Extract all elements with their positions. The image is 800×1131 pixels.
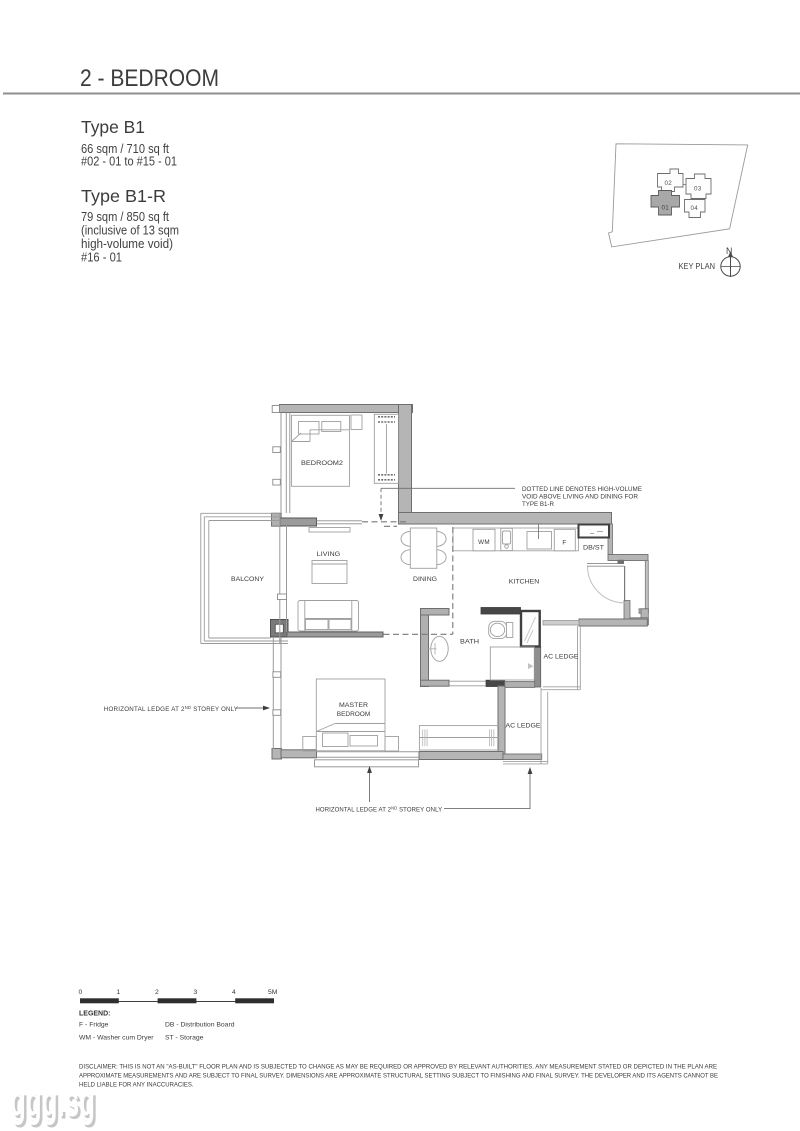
svg-text:BEDROOM2: BEDROOM2 <box>301 460 343 467</box>
svg-text:DISCLAIMER: THIS IS NOT AN "AS: DISCLAIMER: THIS IS NOT AN "AS-BUILT" FL… <box>79 1065 717 1071</box>
svg-text:Type B1-R: Type B1-R <box>81 186 166 206</box>
svg-text:WM - Washer cum Dryer: WM - Washer cum Dryer <box>79 1035 154 1042</box>
svg-text:2: 2 <box>155 989 159 996</box>
svg-text:APPROXIMATE MEASUREMENTS AND A: APPROXIMATE MEASUREMENTS AND ARE SUBJECT… <box>79 1074 718 1080</box>
svg-text:3: 3 <box>194 989 198 996</box>
svg-text:DOTTED LINE DENOTES HIGH-VOLUM: DOTTED LINE DENOTES HIGH-VOLUME <box>522 486 643 493</box>
svg-text:03: 03 <box>694 186 702 193</box>
svg-text:4: 4 <box>232 989 236 996</box>
svg-text:01: 01 <box>662 205 670 212</box>
svg-text:04: 04 <box>691 205 699 212</box>
svg-text:02: 02 <box>665 180 673 187</box>
svg-text:DINING: DINING <box>413 576 437 583</box>
svg-text:ST - Storage: ST - Storage <box>165 1035 204 1042</box>
svg-text:MASTER: MASTER <box>339 702 368 709</box>
svg-text:VOID ABOVE LIVING AND DINING F: VOID ABOVE LIVING AND DINING FOR <box>522 493 638 500</box>
svg-text:DB/ST: DB/ST <box>583 545 604 552</box>
svg-text:BEDROOM: BEDROOM <box>337 711 371 718</box>
svg-text:WM: WM <box>478 539 490 546</box>
svg-text:2 - BEDROOM: 2 - BEDROOM <box>80 65 219 92</box>
svg-text:LIVING: LIVING <box>317 551 341 558</box>
svg-text:TYPE B1-R: TYPE B1-R <box>522 501 554 508</box>
svg-text:HORIZONTAL LEDGE AT 2ND STOREY: HORIZONTAL LEDGE AT 2ND STOREY ONLY <box>316 805 443 813</box>
svg-text:KITCHEN: KITCHEN <box>509 579 540 586</box>
svg-text:AC LEDGE: AC LEDGE <box>506 723 541 730</box>
svg-text:BATH: BATH <box>460 639 479 646</box>
svg-text:1: 1 <box>117 989 121 996</box>
svg-text:AC LEDGE: AC LEDGE <box>544 654 579 661</box>
svg-text:F - Fridge: F - Fridge <box>79 1022 109 1029</box>
svg-text:HORIZONTAL LEDGE AT 2ND STOREY: HORIZONTAL LEDGE AT 2ND STOREY ONLY <box>104 705 238 713</box>
svg-text:Type B1: Type B1 <box>81 117 145 137</box>
svg-text:LEGEND:: LEGEND: <box>79 1011 111 1018</box>
svg-text:F: F <box>562 540 566 547</box>
svg-text:0: 0 <box>79 989 83 996</box>
svg-text:DB - Distribution Board: DB - Distribution Board <box>165 1022 235 1029</box>
svg-text:#02 - 01 to #15 - 01: #02 - 01 to #15 - 01 <box>81 154 177 169</box>
svg-text:5M: 5M <box>268 989 278 996</box>
svg-text:#16 - 01: #16 - 01 <box>81 250 122 265</box>
svg-text:ggg.sg: ggg.sg <box>10 1077 95 1126</box>
svg-text:KEY PLAN: KEY PLAN <box>679 262 716 271</box>
svg-text:BALCONY: BALCONY <box>231 576 264 583</box>
